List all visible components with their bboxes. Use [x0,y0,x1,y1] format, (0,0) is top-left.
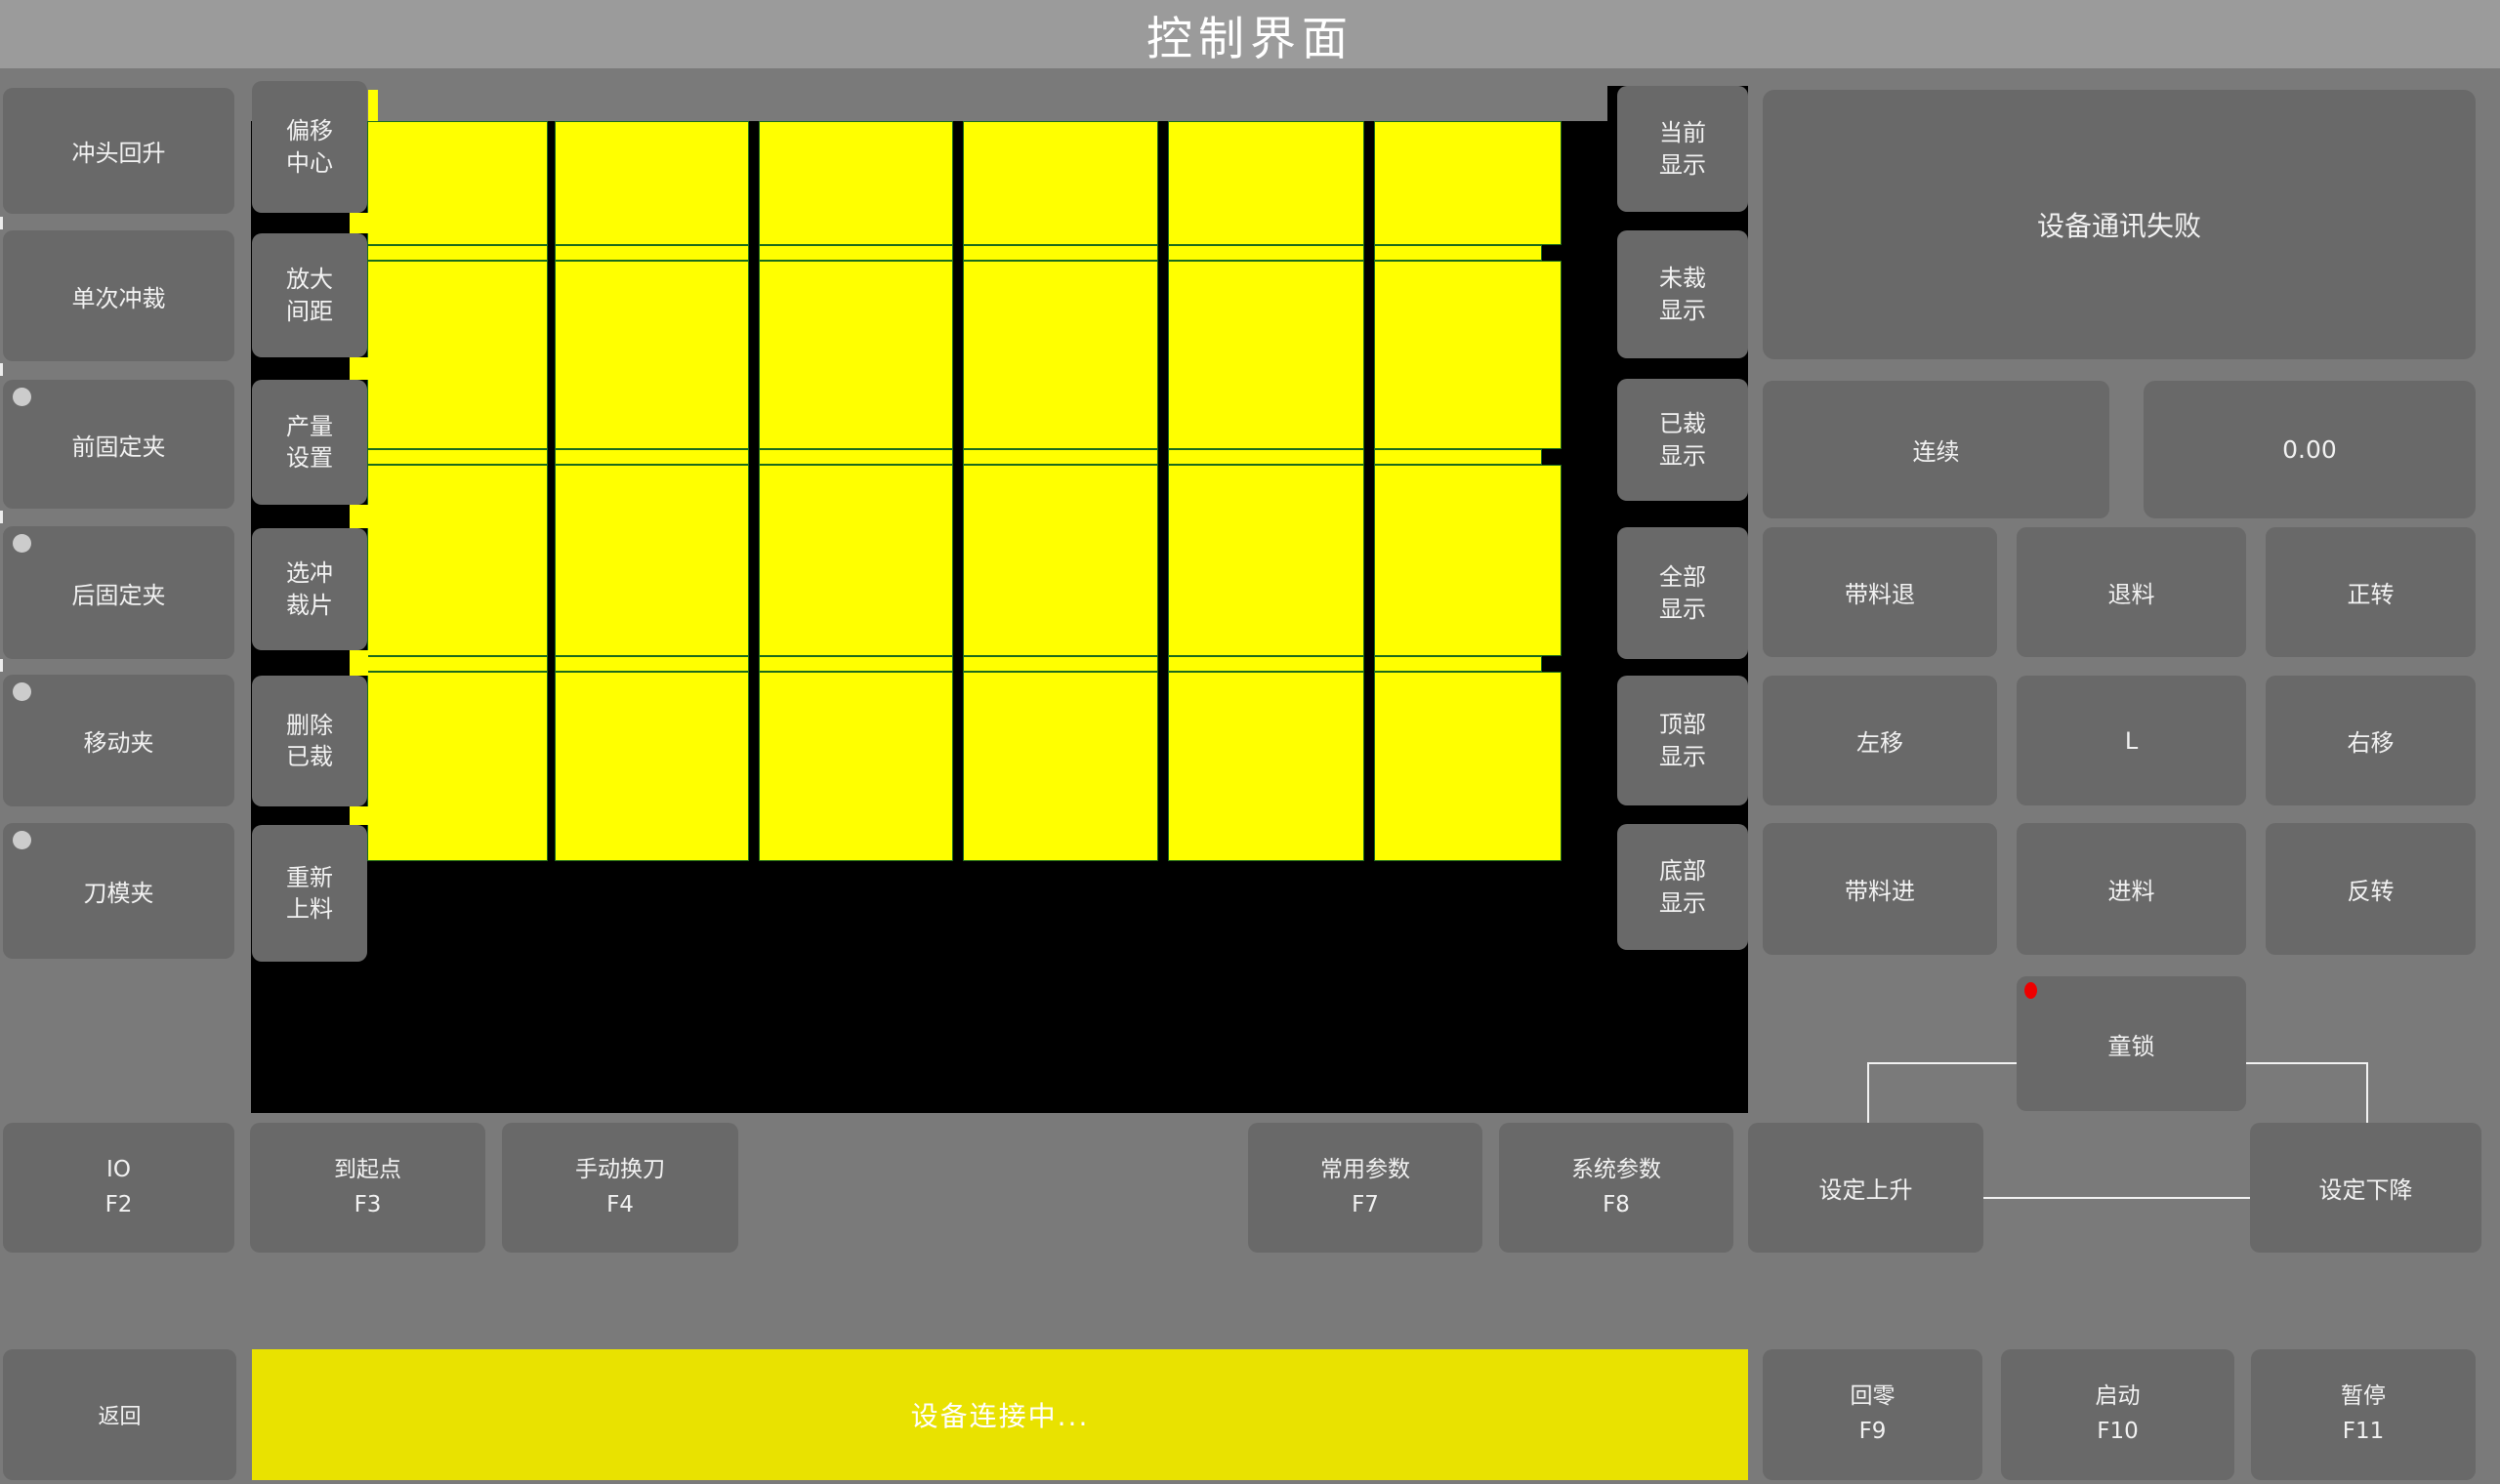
button-label: 底部显示 [1654,855,1711,919]
show-cut-button[interactable]: 已裁显示 [1617,379,1748,501]
sheet-piece[interactable] [555,121,749,245]
edge-mark [0,659,3,672]
button-label: 顶部显示 [1654,709,1711,772]
strip-back-button[interactable]: 带料退 [1763,527,1997,657]
web-strip [1374,449,1542,465]
sheet-tab [350,650,368,676]
sheet-piece[interactable] [367,261,548,449]
sheet-piece[interactable] [1374,672,1562,861]
select-piece-button[interactable]: 选冲裁片 [252,528,367,650]
button-label: 童锁 [2108,1027,2155,1061]
button-label: 放大间距 [281,264,338,327]
move-left-button[interactable]: 左移 [1763,676,1997,805]
connection-status-bar: 设备连接中... [252,1349,1748,1480]
sheet-piece[interactable] [367,121,548,245]
strip-feed-button[interactable]: 带料进 [1763,823,1997,955]
sheet-edge-sliver [368,90,378,121]
enlarge-gap-button[interactable]: 放大间距 [252,233,367,357]
control-screen: { "title": "控制界面", "colors": { "backgrou… [0,0,2500,1484]
button-label: 全部显示 [1654,561,1711,625]
continuous-mode-button[interactable]: 连续 [1763,381,2109,518]
sheet-piece[interactable] [759,121,953,245]
offset-center-button[interactable]: 偏移中心 [252,81,367,213]
sheet-tab [350,505,368,528]
connection-status-text: 设备连接中... [911,1395,1090,1434]
web-strip [1168,245,1364,261]
die-clamp-button[interactable]: 刀模夹 [3,823,234,959]
button-label: 系统参数 [1571,1153,1661,1188]
web-strip [555,245,749,261]
sheet-piece[interactable] [555,465,749,656]
sheet-piece[interactable] [963,121,1158,245]
alarm-dot [2024,982,2037,999]
child-lock-button[interactable]: 童锁 [2017,976,2246,1111]
button-label: 反转 [2348,872,2395,906]
button-label: 冲头回升 [72,134,166,168]
web-strip [367,656,548,672]
button-label: 进料 [2108,872,2155,906]
button-label: 未裁显示 [1654,263,1711,326]
show-current-button[interactable]: 当前显示 [1617,86,1748,212]
button-label: 偏移中心 [281,115,338,179]
web-strip [1168,656,1364,672]
button-label: 暂停 [2341,1380,2386,1415]
button-fkey: F9 [1859,1415,1887,1450]
button-label: 到起点 [334,1153,401,1188]
manual-tool-change-f4-button[interactable]: 手动换刀 F4 [502,1123,738,1253]
button-label: 已裁显示 [1654,408,1711,472]
button-label: 设定下降 [2319,1171,2413,1205]
rear-clamp-button[interactable]: 后固定夹 [3,526,234,659]
output-setting-button[interactable]: 产量设置 [252,380,367,505]
button-fkey: F11 [2343,1415,2385,1450]
delete-cut-button[interactable]: 删除已裁 [252,676,367,806]
button-label: IO [106,1153,131,1188]
sheet-piece[interactable] [759,672,953,861]
sheet-piece[interactable] [1374,261,1562,449]
moving-clamp-button[interactable]: 移动夹 [3,675,234,806]
sheet-piece[interactable] [367,465,548,656]
button-label: 删除已裁 [281,710,338,773]
web-strip [963,245,1158,261]
web-strip [759,449,953,465]
pause-f11-button[interactable]: 暂停 F11 [2251,1349,2476,1480]
sheet-piece[interactable] [759,465,953,656]
web-strip [367,245,548,261]
web-strip [555,656,749,672]
web-strip [759,656,953,672]
edge-mark [0,363,3,376]
set-lower-button[interactable]: 设定下降 [2250,1123,2481,1253]
value-readout: 0.00 [2144,381,2476,518]
device-status-text: 设备通讯失败 [2037,205,2201,244]
feed-button[interactable]: 进料 [2017,823,2246,955]
front-clamp-button[interactable]: 前固定夹 [3,380,234,509]
web-strip [1374,245,1542,261]
web-strip [963,656,1158,672]
button-label: 启动 [2096,1380,2141,1415]
sheet-piece[interactable] [1168,465,1364,656]
button-fkey: F10 [2097,1415,2139,1450]
sheet-piece[interactable] [963,261,1158,449]
set-rise-button[interactable]: 设定上升 [1748,1123,1983,1253]
button-label: 重新上料 [281,862,338,926]
value-text: 0.00 [2282,435,2337,464]
show-all-button[interactable]: 全部显示 [1617,527,1748,659]
show-bottom-button[interactable]: 底部显示 [1617,824,1748,950]
button-label: 后固定夹 [72,576,166,610]
button-label: 前固定夹 [72,428,166,462]
back-button[interactable]: 返回 [3,1349,236,1480]
button-label: 刀模夹 [84,874,154,908]
button-fkey: F7 [1352,1188,1379,1223]
button-label: 选冲裁片 [281,557,338,621]
indicator-dot [13,534,31,553]
common-params-f7-button[interactable]: 常用参数 F7 [1248,1123,1482,1253]
edge-mark [0,511,3,523]
device-status-panel: 设备通讯失败 [1763,90,2476,359]
unload-button[interactable]: 退料 [2017,527,2246,657]
sheet-piece[interactable] [555,261,749,449]
sheet-tab [350,213,368,233]
sheet-piece[interactable] [555,672,749,861]
show-uncut-button[interactable]: 未裁显示 [1617,230,1748,358]
button-label: 连续 [1913,433,1960,467]
button-label: 右移 [2348,723,2395,758]
sheet-piece[interactable] [963,672,1158,861]
sheet-piece[interactable] [1374,465,1562,656]
button-label: 退料 [2108,575,2155,609]
web-strip [1374,656,1542,672]
button-label: 左移 [1856,723,1903,758]
title-bar: 控制界面 [0,0,2500,68]
io-f2-button[interactable]: IO F2 [3,1123,234,1253]
web-strip [367,449,548,465]
indicator-dot [13,388,31,406]
web-strip [1168,449,1364,465]
move-right-button[interactable]: 右移 [2266,676,2476,805]
indicator-dot [13,682,31,701]
sheet-piece[interactable] [1168,121,1364,245]
button-label: 手动换刀 [575,1153,665,1188]
button-label: 带料进 [1845,872,1915,906]
single-punch-button[interactable]: 单次冲裁 [3,230,234,361]
l-button[interactable]: L [2017,676,2246,805]
punch-raise-button[interactable]: 冲头回升 [3,88,234,214]
show-top-button[interactable]: 顶部显示 [1617,676,1748,805]
button-label: 常用参数 [1320,1153,1410,1188]
button-label: 移动夹 [84,723,154,758]
button-label: L [2125,727,2138,755]
system-params-f8-button[interactable]: 系统参数 F8 [1499,1123,1733,1253]
forward-rotate-button[interactable]: 正转 [2266,527,2476,657]
reverse-rotate-button[interactable]: 反转 [2266,823,2476,955]
sheet-piece[interactable] [963,465,1158,656]
go-origin-f3-button[interactable]: 到起点 F3 [250,1123,485,1253]
button-label: 回零 [1851,1380,1896,1415]
sheet-tab [350,357,368,380]
button-fkey: F8 [1603,1188,1630,1223]
button-label: 单次冲裁 [72,279,166,313]
button-fkey: F4 [606,1188,634,1223]
web-strip [963,449,1158,465]
button-fkey: F2 [105,1188,133,1223]
sheet-piece[interactable] [1168,672,1364,861]
sheet-piece[interactable] [1168,261,1364,449]
button-fkey: F3 [354,1188,382,1223]
sheet-piece[interactable] [367,672,548,861]
page-title: 控制界面 [1146,1,1354,68]
button-label: 产量设置 [281,411,338,474]
edge-mark [0,217,3,229]
home-f9-button[interactable]: 回零 F9 [1763,1349,1982,1480]
button-label: 当前显示 [1654,117,1711,181]
indicator-dot [13,831,31,849]
button-label: 正转 [2348,575,2395,609]
web-strip [555,449,749,465]
button-label: 带料退 [1845,575,1915,609]
sheet-piece[interactable] [759,261,953,449]
button-label: 返回 [98,1399,141,1430]
sheet-piece[interactable] [1374,121,1562,245]
start-f10-button[interactable]: 启动 F10 [2001,1349,2234,1480]
button-label: 设定上升 [1819,1171,1913,1205]
reload-material-button[interactable]: 重新上料 [252,825,367,962]
web-strip [759,245,953,261]
sheet-tab [350,806,368,825]
